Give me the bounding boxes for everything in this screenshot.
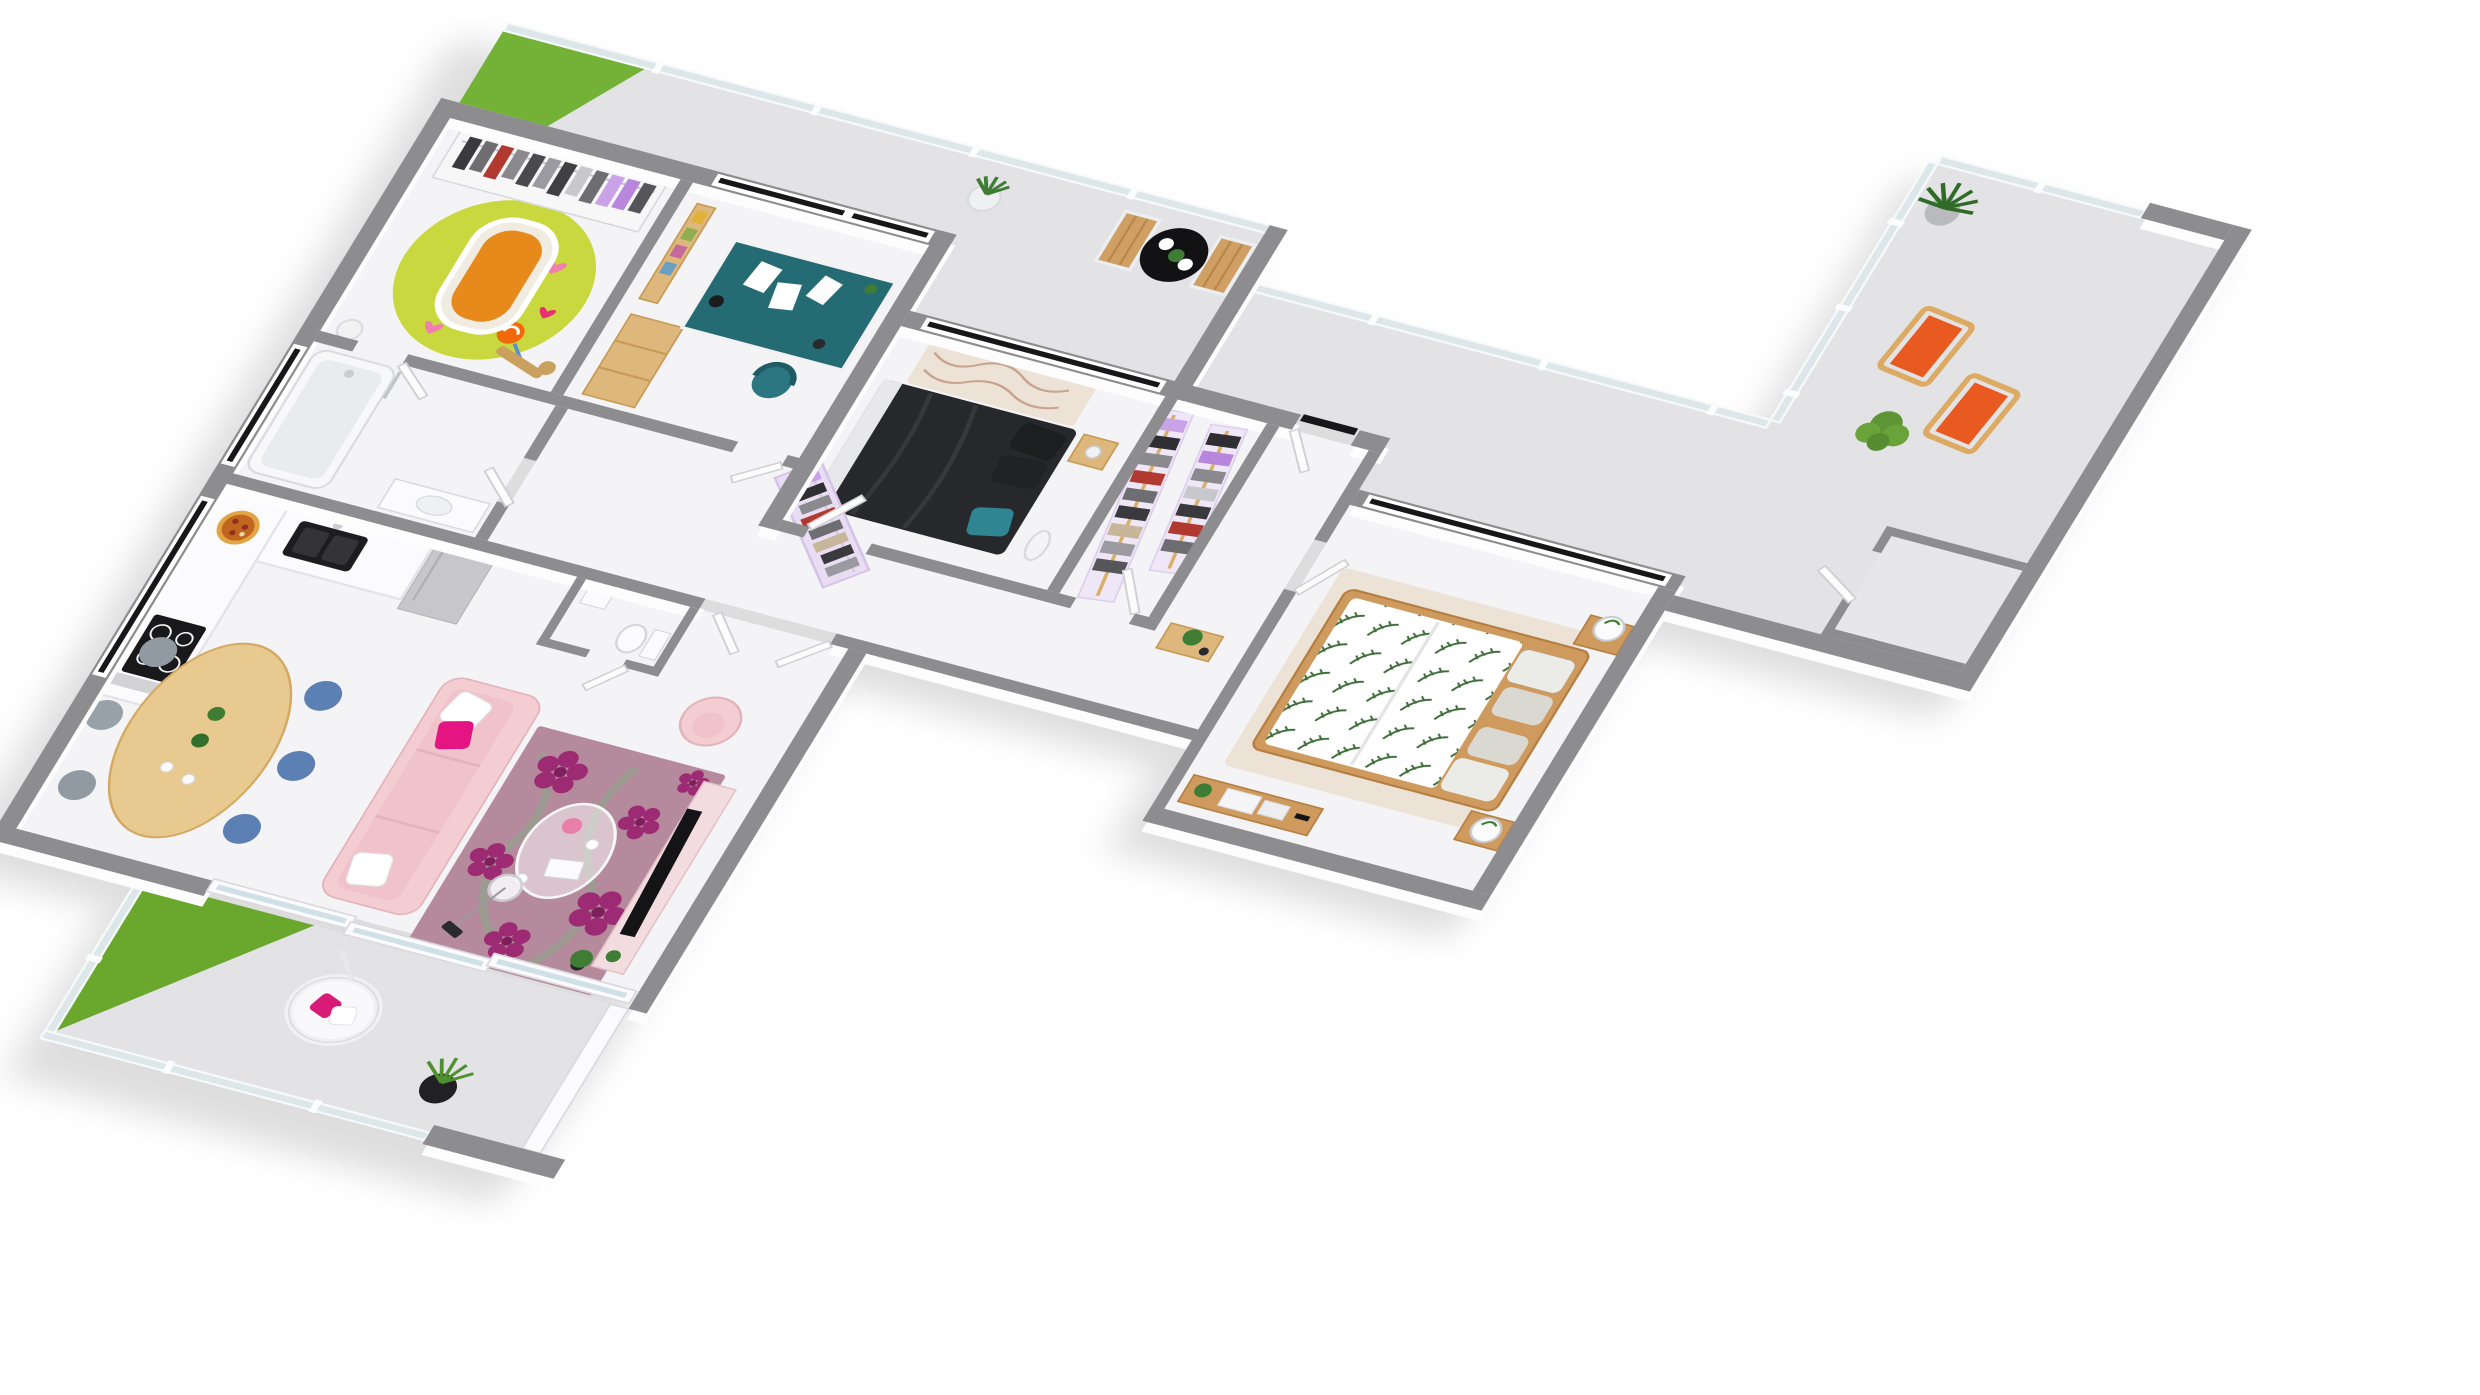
books: [544, 858, 585, 879]
floorplan-svg: [0, 0, 2480, 1395]
teal-cushion: [965, 507, 1015, 537]
floorplan-stage: [0, 0, 2480, 1395]
magenta-pillow: [434, 721, 475, 749]
